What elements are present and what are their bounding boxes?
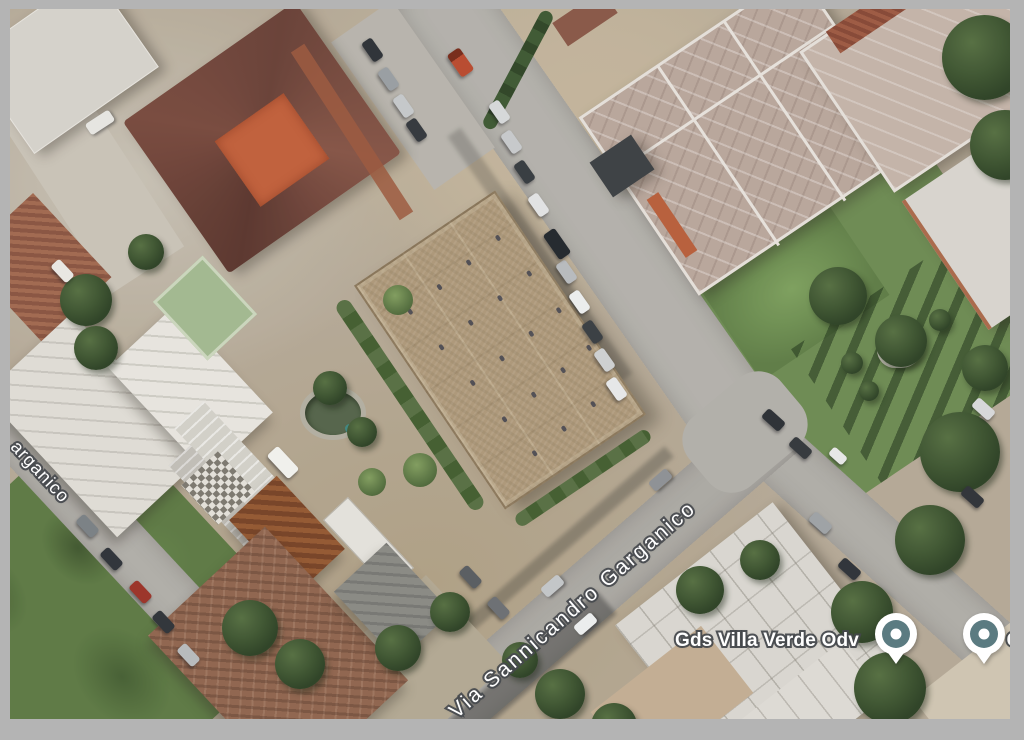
- tree: [809, 267, 867, 325]
- bush: [358, 468, 386, 496]
- pin-center-dot: [891, 629, 902, 640]
- tree: [430, 592, 470, 632]
- tree: [676, 566, 724, 614]
- poi-label-villa-verde[interactable]: Gds Villa Verde Odv: [675, 630, 859, 652]
- pin-center-dot: [979, 629, 990, 640]
- tree: [942, 15, 1024, 100]
- bush: [859, 381, 879, 401]
- bush: [383, 285, 413, 315]
- tree: [895, 505, 965, 575]
- poi-label-partial: G: [1007, 630, 1022, 652]
- tree: [222, 600, 278, 656]
- tree: [313, 371, 347, 405]
- bush: [403, 453, 437, 487]
- map-viewport[interactable]: Via Sannicandro Garganico arganico Gds V…: [0, 0, 1024, 740]
- tree: [875, 315, 927, 367]
- tree: [74, 326, 118, 370]
- map-pin[interactable]: [963, 613, 1005, 655]
- tree: [128, 234, 164, 270]
- bush: [929, 309, 951, 331]
- satellite-scene: [0, 0, 1024, 740]
- tree: [347, 417, 377, 447]
- tree: [535, 669, 585, 719]
- bush: [841, 352, 863, 374]
- tree: [740, 540, 780, 580]
- map-pin[interactable]: [875, 613, 917, 655]
- tree: [962, 345, 1008, 391]
- tree: [275, 639, 325, 689]
- tree: [60, 274, 112, 326]
- tree: [375, 625, 421, 671]
- tree: [920, 412, 1000, 492]
